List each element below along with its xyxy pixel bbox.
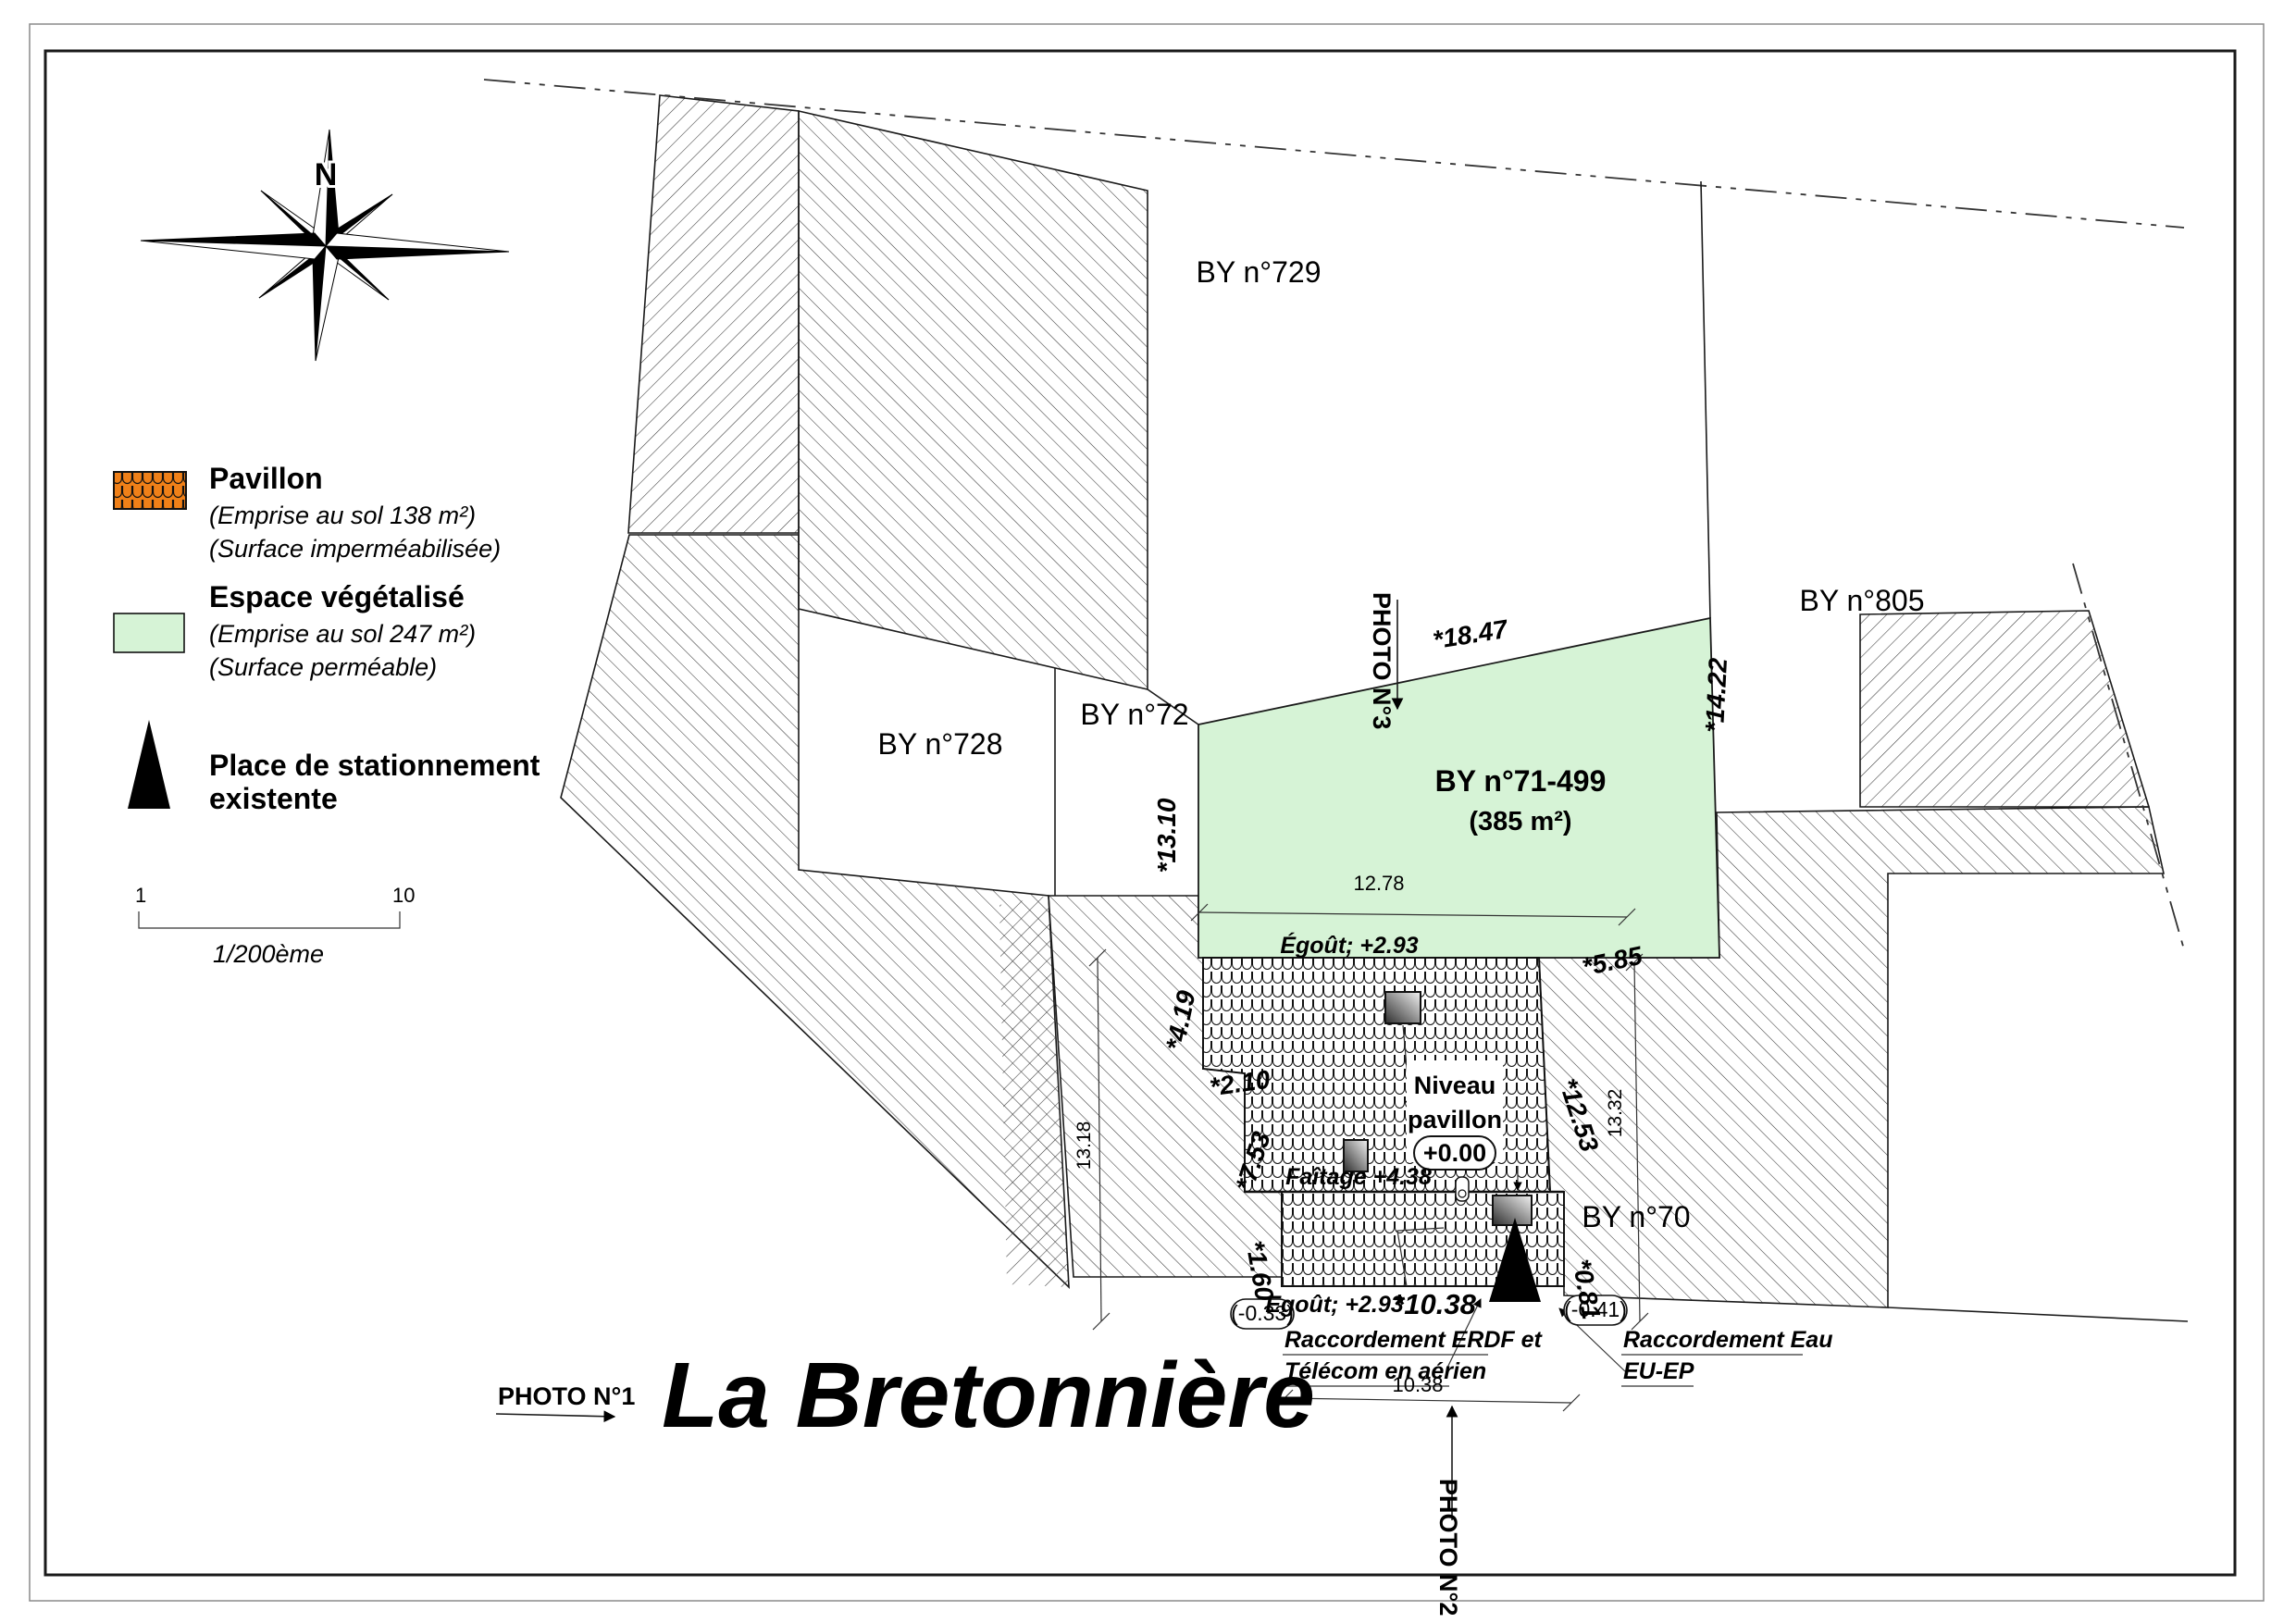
dim-18-47: *18.47 bbox=[1431, 614, 1510, 655]
dim-13-32: 13.32 bbox=[1605, 1089, 1626, 1138]
parcel-label-by72: BY n°72 bbox=[1080, 698, 1188, 731]
hatched-building-north bbox=[799, 111, 1148, 689]
legend-parking-triangle bbox=[128, 720, 170, 809]
parcel-label-by729: BY n°729 bbox=[1197, 255, 1322, 289]
photo2-label: PHOTO N°2 bbox=[1434, 1479, 1462, 1616]
raccordement-eau-line1: Raccordement Eau bbox=[1623, 1327, 1832, 1353]
dim-13-18: 13.18 bbox=[1074, 1121, 1095, 1171]
niveau-label-2: pavillon bbox=[1408, 1106, 1502, 1134]
scalebar-bracket bbox=[139, 911, 400, 928]
parcel-label-by70: BY n°70 bbox=[1582, 1200, 1690, 1233]
plan-title: La Bretonnière bbox=[662, 1344, 1315, 1447]
legend-parking-line2: existente bbox=[209, 782, 338, 815]
photo3-label: PHOTO N°3 bbox=[1368, 592, 1396, 729]
site-plan-page: Niveau pavillon +0.00 (-0.33) (-0.41) BY… bbox=[0, 0, 2296, 1623]
parcel-label-by71-499: BY n°71-499 bbox=[1435, 764, 1607, 798]
legend-espace-line2: (Surface perméable) bbox=[209, 653, 437, 681]
roof-window-icon bbox=[1385, 992, 1421, 1023]
dim-13-10: *13.10 bbox=[1152, 798, 1181, 873]
hatched-building-by805 bbox=[1860, 611, 2149, 807]
by729-east-edge bbox=[1701, 181, 1710, 618]
compass-north-label: N bbox=[315, 157, 338, 192]
dim-14-22: *14.22 bbox=[1700, 657, 1732, 734]
dim-12-78: 12.78 bbox=[1353, 872, 1404, 895]
legend-pavillon-line2: (Surface imperméabilisée) bbox=[209, 535, 501, 563]
raccordement-eau-line2: EU-EP bbox=[1623, 1358, 1694, 1384]
legend-pavillon-line1: (Emprise au sol 138 m²) bbox=[209, 502, 476, 529]
parcel-label-by728: BY n°728 bbox=[878, 727, 1003, 761]
legend-espace-swatch bbox=[114, 613, 184, 652]
legend-pavillon-title: Pavillon bbox=[209, 462, 323, 495]
egout-bottom-label: Egoût; +2.93 bbox=[1265, 1292, 1403, 1318]
roof-window-icon bbox=[1493, 1196, 1532, 1225]
site-plan-drawing: Niveau pavillon +0.00 (-0.33) (-0.41) BY… bbox=[0, 0, 2296, 1623]
legend-pavillon-swatch bbox=[114, 472, 186, 509]
niveau-label-1: Niveau bbox=[1414, 1072, 1496, 1099]
egout-top-label: Égoût; +2.93 bbox=[1280, 932, 1418, 959]
legend-parking-line1: Place de stationnement bbox=[209, 749, 540, 782]
scalebar-ratio: 1/200ème bbox=[213, 940, 324, 968]
photo1-label: PHOTO N°1 bbox=[498, 1382, 635, 1410]
hatched-building-northwest-strip bbox=[628, 95, 799, 533]
ridge-vent-dot bbox=[1458, 1190, 1466, 1197]
scalebar-end: 10 bbox=[392, 884, 415, 907]
legend-espace-title: Espace végétalisé bbox=[209, 580, 465, 613]
photo1-arrow bbox=[496, 1414, 614, 1417]
faitage-label: Faîtage +4.38 bbox=[1285, 1164, 1432, 1190]
parcel-label-by805: BY n°805 bbox=[1800, 584, 1925, 617]
street-line-east bbox=[1888, 1307, 2188, 1321]
parcel-area-by71-499: (385 m²) bbox=[1469, 807, 1571, 836]
niveau-value: +0.00 bbox=[1423, 1139, 1486, 1167]
dim-10-38-star: *10.38 bbox=[1393, 1288, 1476, 1320]
scalebar-start: 1 bbox=[135, 884, 146, 907]
raccordement-erdf-line1: Raccordement ERDF et bbox=[1285, 1327, 1544, 1353]
legend-espace-line1: (Emprise au sol 247 m²) bbox=[209, 620, 476, 648]
